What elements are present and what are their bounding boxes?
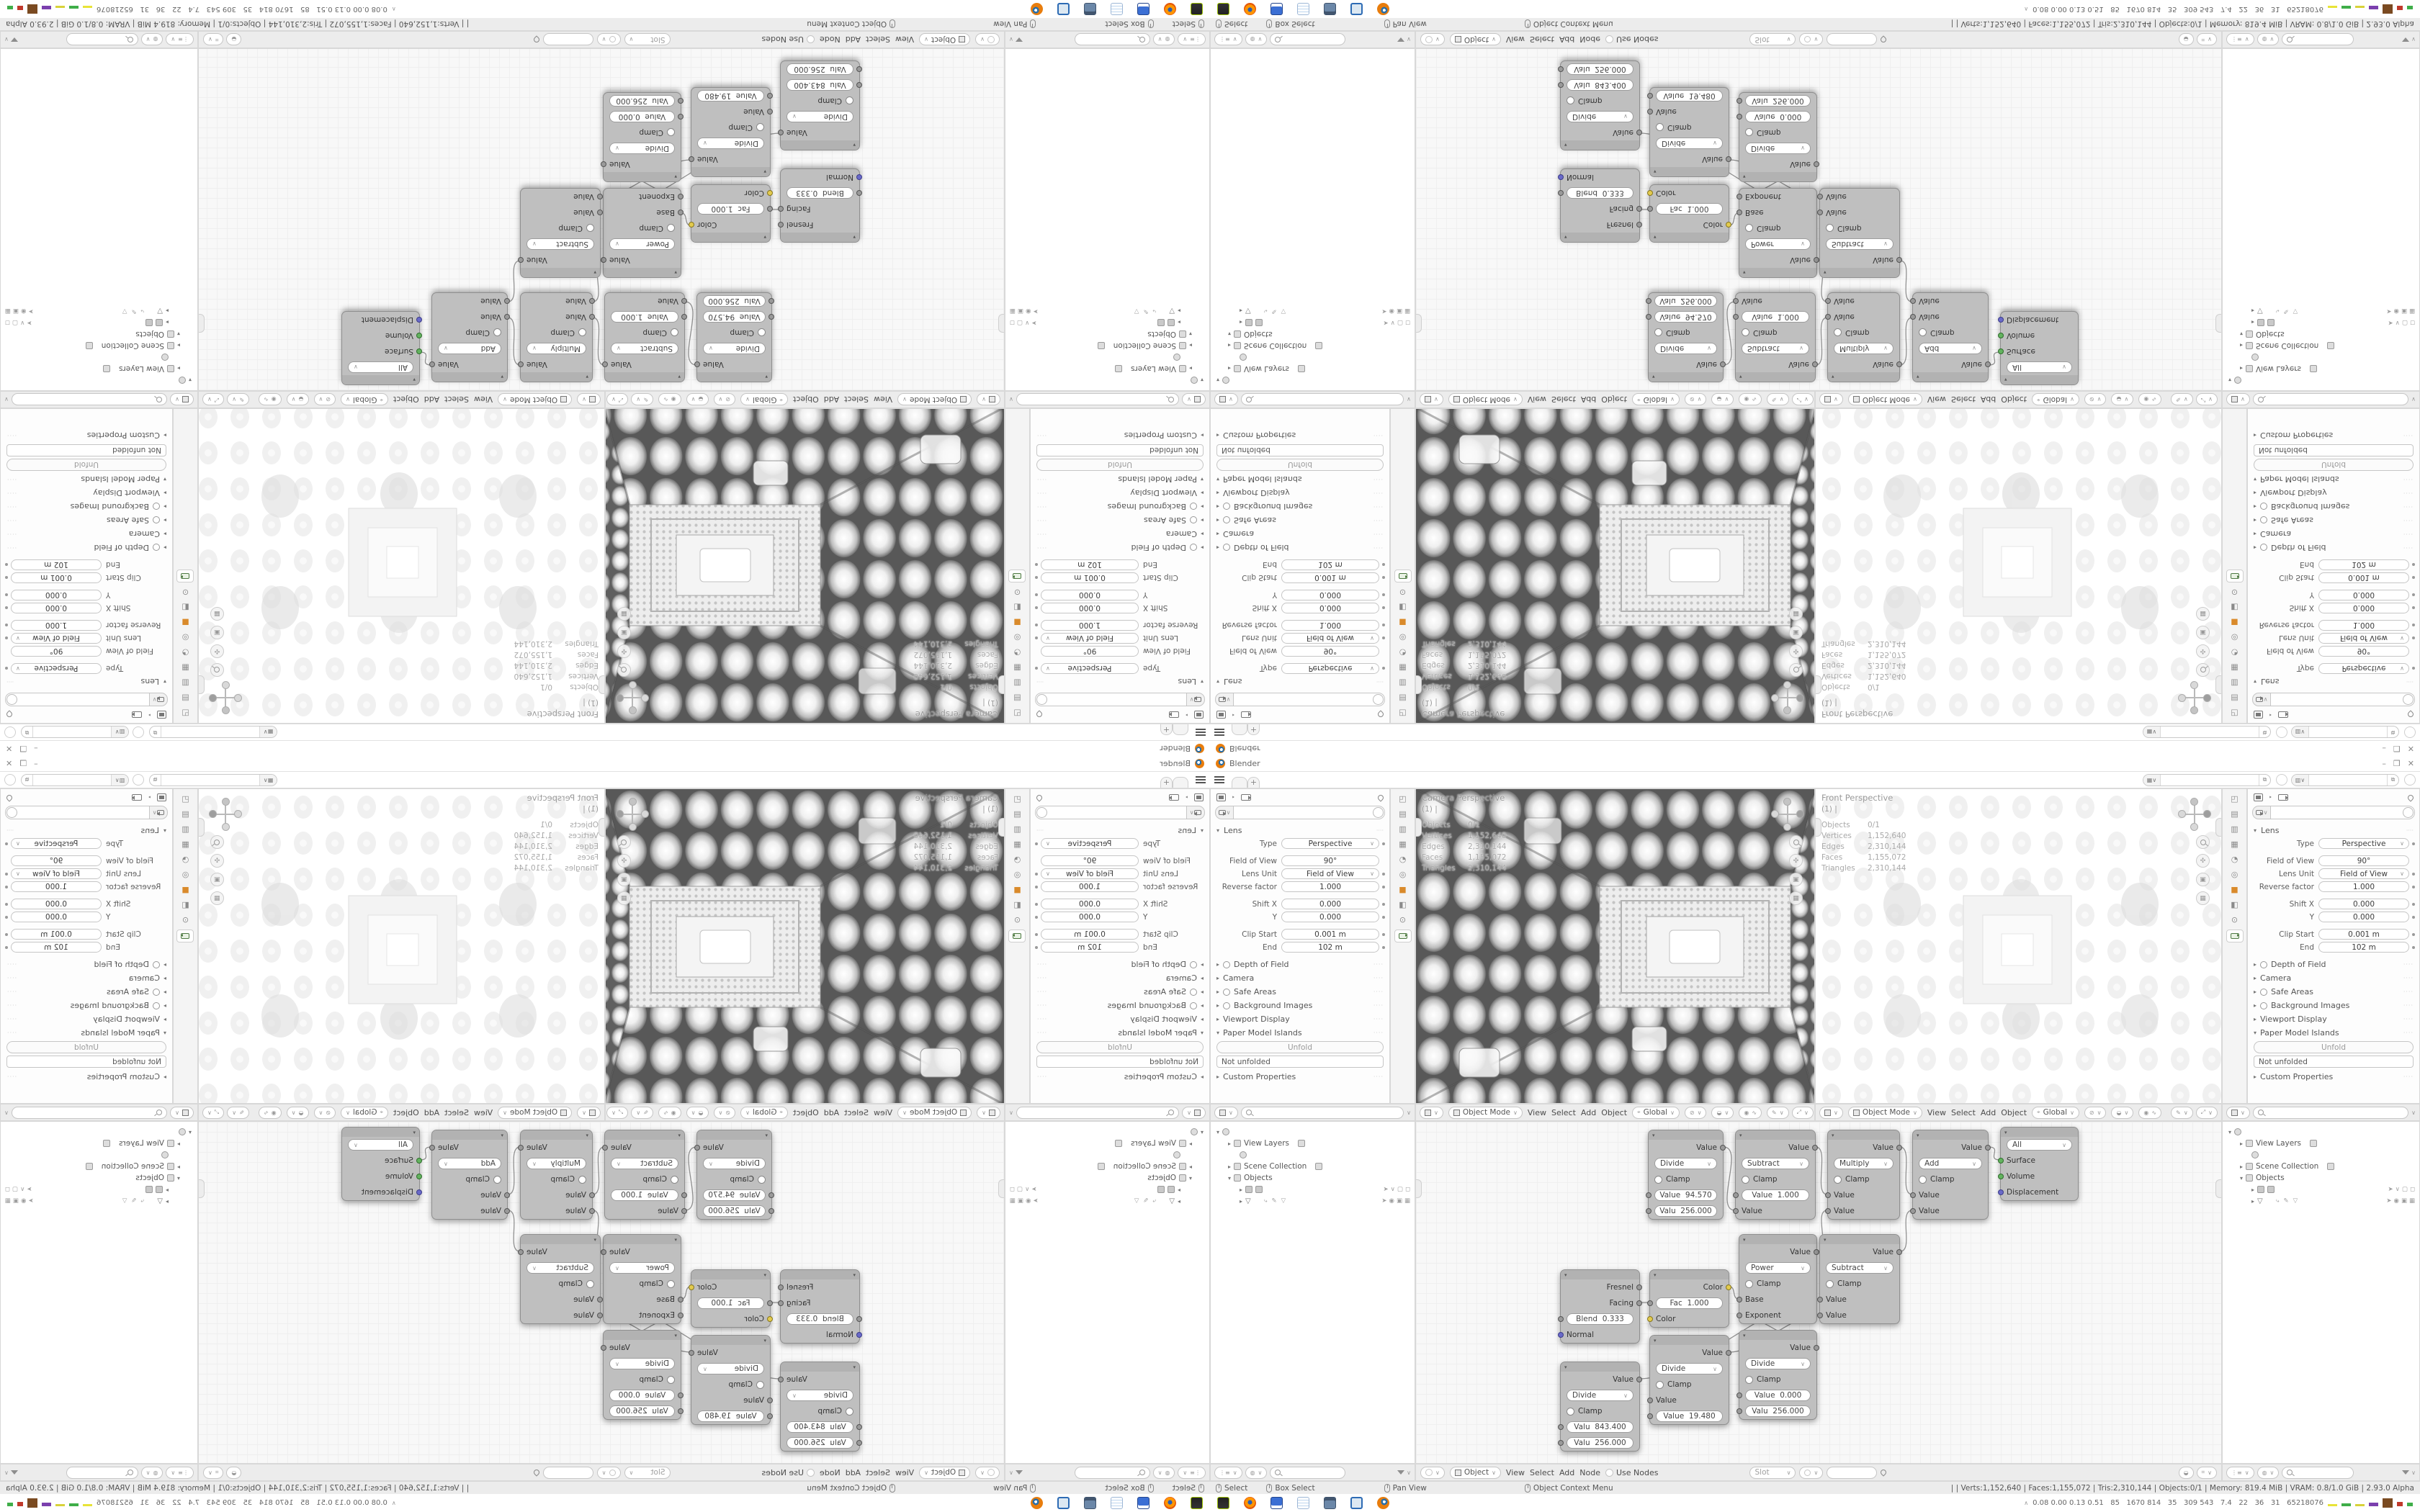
- tool-tab-icon[interactable]: ◰: [1012, 793, 1023, 804]
- object-tab-icon[interactable]: ■: [2229, 618, 2241, 628]
- camera-section[interactable]: ▸Camera····: [1, 527, 172, 541]
- scene-selector[interactable]: ▦∨⧉: [2143, 774, 2271, 786]
- facing-output-socket[interactable]: [778, 1300, 784, 1306]
- add-menu[interactable]: Add: [1981, 395, 1996, 405]
- camera-icon[interactable]: ▦: [5, 307, 11, 315]
- shift-x-field[interactable]: 0.000: [1281, 603, 1379, 613]
- math-node[interactable]: ▾ Value Divide∨ Clamp Value Value 19.480: [1649, 87, 1729, 177]
- safe-areas-checkbox[interactable]: [1190, 517, 1197, 524]
- math-node[interactable]: ▾ Value Add∨ Clamp Value Value: [431, 1130, 508, 1220]
- unlink-scene-button[interactable]: [2276, 727, 2287, 739]
- filter-funnel-icon[interactable]: [1397, 37, 1404, 42]
- node-collapse-toggle[interactable]: ▾: [1561, 1362, 1639, 1372]
- dof-checkbox[interactable]: [1223, 961, 1230, 968]
- value-output-socket[interactable]: [1636, 1377, 1642, 1382]
- blend-field[interactable]: Blend 0.333: [786, 1313, 853, 1325]
- object-tab-icon[interactable]: ■: [1012, 884, 1023, 894]
- dof-section[interactable]: ▸Depth of Field····: [1, 541, 172, 554]
- material-id-field[interactable]: [543, 34, 593, 46]
- custom-properties-section[interactable]: ▸Custom Properties····: [1211, 428, 1389, 442]
- unfold-button[interactable]: Unfold: [1216, 459, 1384, 471]
- math-operation-dropdown[interactable]: Multiply∨: [1834, 343, 1894, 354]
- reverse-factor-field[interactable]: 1.000: [2318, 881, 2409, 892]
- screen-icon[interactable]: ▣: [13, 1197, 19, 1205]
- new-scene-icon[interactable]: ⧉: [2259, 775, 2270, 786]
- background-images-checkbox[interactable]: [1190, 503, 1197, 510]
- visibility-icon[interactable]: ◉: [1389, 307, 1394, 315]
- material-icon-dropdown[interactable]: ∨: [1799, 1467, 1823, 1479]
- blender-icon[interactable]: [1377, 3, 1389, 15]
- render-tab-icon[interactable]: ▤: [2229, 809, 2241, 819]
- math-node[interactable]: ▾ Value Subtract∨ Clamp Value 1.000 Valu…: [604, 292, 685, 382]
- value-input-socket[interactable]: [1646, 298, 1652, 304]
- node-collapse-toggle[interactable]: ▾: [691, 1336, 770, 1345]
- viewlayer-tab-icon[interactable]: ▦: [1397, 839, 1409, 849]
- math-operation-dropdown[interactable]: Divide∨: [1567, 111, 1633, 122]
- transform-gizmo-dropdown[interactable]: ⤢∨: [606, 394, 628, 406]
- add-menu[interactable]: Add: [1559, 35, 1574, 45]
- viewport-display-section[interactable]: ▸Viewport Display····: [1031, 1012, 1209, 1026]
- value-input-socket[interactable]: [1736, 1408, 1742, 1414]
- normal-input-socket[interactable]: [1558, 174, 1564, 180]
- fake-user-shield-icon[interactable]: [6, 694, 17, 705]
- dof-checkbox[interactable]: [1223, 544, 1230, 552]
- annotate-tool-dropdown[interactable]: ✎∨: [1767, 394, 1789, 406]
- safe-areas-checkbox[interactable]: [1223, 517, 1230, 524]
- outliner-search-input[interactable]: [12, 1107, 167, 1119]
- facing-output-socket[interactable]: [1636, 206, 1642, 212]
- window-titlebar[interactable]: Blender – ❒ ✕: [1210, 756, 2420, 772]
- viewport-camera-perspective[interactable]: Camera Perspective (1) | Objects0/1 Vert…: [605, 408, 1005, 724]
- dof-section[interactable]: ▸Depth of Field····: [1211, 541, 1389, 554]
- node-collapse-toggle[interactable]: ▾: [342, 375, 419, 384]
- value-input-socket[interactable]: [1736, 1392, 1742, 1398]
- surface-input-socket[interactable]: [416, 1158, 422, 1164]
- value-field[interactable]: Value 1.000: [1742, 1189, 1809, 1201]
- pan-hand-icon[interactable]: ✣: [617, 644, 631, 658]
- viewport-camera-perspective[interactable]: Camera Perspective (1) | Objects0/1 Vert…: [1415, 788, 1815, 1104]
- view-menu[interactable]: View: [474, 1108, 493, 1117]
- add-menu[interactable]: Add: [1559, 1468, 1574, 1477]
- output-tab-icon[interactable]: ▥: [1397, 824, 1409, 834]
- clip-end-field[interactable]: 102 m: [1041, 942, 1139, 953]
- slot-dropdown[interactable]: Slot∨: [624, 1467, 671, 1479]
- editor-type-button[interactable]: ∨: [1819, 394, 1843, 406]
- outliner-object-data-row[interactable]: ▸▽⤷✎▽➤◉▣▦: [2228, 305, 2415, 317]
- select-icon[interactable]: ➤: [2388, 1186, 2393, 1193]
- math-node[interactable]: ▾ Value Subtract∨ Clamp Value 1.000 Valu…: [1735, 292, 1816, 382]
- lens-panel-header[interactable]: ▾Lens····: [1031, 819, 1209, 837]
- value-field[interactable]: Valu 256.000: [1567, 1437, 1633, 1449]
- lens-unit-dropdown[interactable]: Field of View: [1041, 633, 1139, 644]
- transform-gizmo-dropdown[interactable]: ⤢∨: [202, 1107, 224, 1119]
- minimize-button[interactable]: –: [34, 759, 38, 768]
- shader-type-dropdown[interactable]: Object∨: [1450, 1467, 1501, 1479]
- value-field[interactable]: Value 19.480: [1656, 90, 1723, 102]
- outliner-world-row[interactable]: [1216, 351, 1410, 363]
- outliner-scene-collection-row[interactable]: ▸Scene Collection: [1010, 340, 1204, 351]
- navigation-gizmo[interactable]: [1771, 798, 1804, 831]
- value-input-socket[interactable]: [1646, 1208, 1652, 1214]
- clamp-checkbox[interactable]: [493, 1176, 501, 1184]
- math-node[interactable]: ▾ Value Divide∨ Clamp Value 94.570 Valu …: [1648, 292, 1724, 382]
- value-input-socket[interactable]: [504, 1192, 510, 1198]
- clamp-checkbox[interactable]: [578, 1176, 586, 1184]
- view-menu[interactable]: View: [1927, 1108, 1946, 1117]
- value-field[interactable]: Valu 256.000: [1654, 1205, 1717, 1217]
- object-tab-icon[interactable]: ■: [1012, 618, 1023, 628]
- value-output-socket[interactable]: [1814, 1249, 1819, 1255]
- base-input-socket[interactable]: [1736, 210, 1742, 215]
- close-button[interactable]: ✕: [6, 759, 12, 768]
- node-collapse-toggle[interactable]: ▾: [432, 372, 507, 382]
- transform-orientation-dropdown[interactable]: ⌖Global∨: [740, 394, 788, 406]
- node-collapse-toggle[interactable]: ▾: [1561, 140, 1639, 150]
- background-images-section[interactable]: ▸Background Images····: [1031, 999, 1209, 1012]
- select-menu[interactable]: Select: [444, 395, 469, 405]
- outliner-world-row[interactable]: [1010, 351, 1204, 363]
- lens-unit-dropdown[interactable]: Field of View: [11, 633, 102, 644]
- navigation-gizmo[interactable]: [1771, 681, 1804, 714]
- shader-type-dropdown[interactable]: Object∨: [1450, 34, 1501, 46]
- material-id-field[interactable]: [543, 1467, 593, 1479]
- navigation-gizmo[interactable]: [2178, 681, 2211, 714]
- remove-viewlayer-button[interactable]: [4, 727, 16, 739]
- node-sidebar-collapsed-tab[interactable]: [199, 314, 205, 333]
- background-images-section[interactable]: ▸Background Images····: [1, 500, 172, 513]
- fac-field[interactable]: Fac 1.000: [1656, 203, 1723, 215]
- object-data-tab-icon[interactable]: [177, 930, 194, 942]
- math-operation-dropdown[interactable]: Add∨: [438, 1158, 501, 1169]
- object-data-tab-icon[interactable]: [1394, 570, 1412, 582]
- paper-model-islands-section[interactable]: ▾Paper Model Islands····: [2248, 472, 2419, 486]
- value-input-socket[interactable]: [1733, 298, 1739, 304]
- snap-target-dropdown[interactable]: ⊘∨: [314, 1107, 336, 1119]
- value-output-socket[interactable]: [694, 1145, 700, 1151]
- custom-properties-section[interactable]: ▸Custom Properties····: [2248, 1070, 2419, 1084]
- value-input-socket[interactable]: [767, 1398, 773, 1403]
- math-operation-dropdown[interactable]: Multiply∨: [526, 1158, 586, 1169]
- surface-input-socket[interactable]: [1998, 1158, 2004, 1164]
- filter-owner-dropdown[interactable]: ◍∨: [2257, 1467, 2280, 1479]
- node-collapse-toggle[interactable]: ▾: [1561, 233, 1639, 242]
- camera-datablock-selector[interactable]: ∨: [2252, 806, 2415, 819]
- value-input-socket[interactable]: [1910, 1208, 1916, 1214]
- custom-properties-section[interactable]: ▸Custom Properties····: [1031, 1070, 1209, 1084]
- snap-target-dropdown[interactable]: ⊘∨: [1685, 394, 1707, 406]
- clamp-checkbox[interactable]: [671, 1176, 678, 1184]
- outliner-filter-dropdown[interactable]: ∨: [2411, 1110, 2416, 1116]
- value-output-socket[interactable]: [601, 1249, 606, 1255]
- node-collapse-toggle[interactable]: ▾: [1739, 1331, 1816, 1340]
- search-input[interactable]: [66, 1467, 138, 1479]
- camera-icon[interactable]: ▦: [1010, 307, 1016, 315]
- tool-tab-icon[interactable]: ◰: [2229, 793, 2241, 804]
- reverse-factor-field[interactable]: 1.000: [1281, 881, 1379, 892]
- sidebar-collapsed-tab[interactable]: [199, 675, 205, 694]
- camera-view-icon[interactable]: ▣: [210, 626, 224, 639]
- screen-icon[interactable]: ▢: [2402, 1186, 2408, 1193]
- fac-input-socket[interactable]: [767, 206, 773, 212]
- value-input-socket[interactable]: [1647, 1398, 1653, 1403]
- new-viewlayer-icon[interactable]: ⧉: [22, 727, 33, 738]
- screen-icon[interactable]: ▢: [1397, 1186, 1403, 1193]
- select-menu[interactable]: Select: [1530, 35, 1554, 45]
- value-field[interactable]: Valu 843.400: [786, 79, 853, 91]
- output-tab-icon[interactable]: ▥: [1012, 678, 1023, 688]
- select-menu[interactable]: Select: [866, 35, 890, 45]
- reverse-factor-field[interactable]: 1.000: [11, 620, 102, 631]
- use-nodes-checkbox[interactable]: [807, 1469, 815, 1477]
- screen-icon[interactable]: ▢: [1397, 319, 1403, 326]
- camera-icon[interactable]: ▦: [1010, 1197, 1016, 1205]
- proportional-editing-toggle[interactable]: ◉∿: [1739, 1107, 1762, 1119]
- grid-toggle-icon[interactable]: ▦: [617, 607, 631, 621]
- display-mode-dropdown[interactable]: ⋮≡∨: [166, 1467, 194, 1479]
- pin-icon[interactable]: [5, 711, 13, 719]
- material-output-node[interactable]: ▾ All∨ Surface Volume Displacement: [341, 1127, 420, 1201]
- value-input-socket[interactable]: [1558, 66, 1564, 72]
- reverse-factor-field[interactable]: 1.000: [1281, 620, 1379, 631]
- color-output-socket[interactable]: [1726, 1284, 1731, 1290]
- math-node[interactable]: ▾ Value Divide∨ Clamp Valu 843.400 Valu …: [1560, 60, 1640, 150]
- node-collapse-toggle[interactable]: ▾: [781, 1362, 859, 1372]
- value-output-socket[interactable]: [1896, 1145, 1902, 1151]
- clip-start-field[interactable]: 0.001 m: [11, 929, 102, 940]
- sidebar-collapsed-tab[interactable]: [2215, 675, 2221, 694]
- camera-section[interactable]: ▸Camera····: [2248, 527, 2419, 541]
- camera-section[interactable]: ▸Camera····: [1, 971, 172, 985]
- layer-weight-node[interactable]: ▾ Fresnel Facing Blend 0.333 Normal: [780, 168, 860, 243]
- object-menu[interactable]: Object: [393, 1108, 419, 1117]
- math-node[interactable]: ▾ Value Multiply∨ Clamp Value Value: [1827, 292, 1900, 382]
- dof-section[interactable]: ▸Depth of Field····: [2248, 958, 2419, 971]
- new-scene-icon[interactable]: ⧉: [2259, 727, 2270, 738]
- fov-field[interactable]: 90°: [1281, 646, 1379, 657]
- select-menu[interactable]: Select: [844, 1108, 869, 1117]
- notepad-icon[interactable]: [1111, 3, 1123, 15]
- mode-dropdown[interactable]: Object Mode∨: [1848, 394, 1922, 406]
- add-menu[interactable]: Add: [1581, 395, 1596, 405]
- math-node[interactable]: ▾ Value Multiply∨ Clamp Value Value: [1827, 1130, 1900, 1220]
- node-collapse-toggle[interactable]: ▾: [604, 1235, 681, 1244]
- viewport-display-section[interactable]: ▸Viewport Display····: [1, 1012, 172, 1026]
- screen-icon[interactable]: ▢: [12, 319, 18, 326]
- visibility-icon[interactable]: ◉: [1389, 1197, 1394, 1205]
- output-tab-icon[interactable]: ▥: [1012, 824, 1023, 834]
- value-output-socket[interactable]: [778, 1377, 784, 1382]
- annotate-tool-dropdown[interactable]: ✎∨: [631, 1107, 653, 1119]
- scene-tab-icon[interactable]: ◔: [1012, 854, 1023, 864]
- scene-selector[interactable]: ▦∨⧉: [149, 726, 277, 739]
- value-input-socket[interactable]: [1558, 1440, 1564, 1446]
- select-menu[interactable]: Select: [1530, 1468, 1554, 1477]
- value-input-socket[interactable]: [589, 298, 595, 304]
- add-workspace-tab[interactable]: +: [1247, 777, 1260, 788]
- snap-magnet-toggle[interactable]: ◒∨: [2111, 1107, 2133, 1119]
- math-node[interactable]: ▾ Value Power∨ Clamp Base Exponent: [603, 188, 681, 278]
- layer-weight-node[interactable]: ▾ Fresnel Facing Blend 0.333 Normal: [1560, 168, 1640, 243]
- visibility-icon[interactable]: ◉: [2394, 1197, 2399, 1205]
- pan-hand-icon[interactable]: ✣: [1789, 854, 1803, 868]
- value-input-socket[interactable]: [589, 1208, 595, 1214]
- fresnel-output-socket[interactable]: [778, 222, 784, 228]
- shift-y-field[interactable]: 0.000: [1281, 590, 1379, 600]
- close-button[interactable]: ✕: [6, 744, 12, 753]
- remove-viewlayer-button[interactable]: [2404, 774, 2416, 786]
- outliner-view-layers-row[interactable]: ▸View Layers: [1010, 1138, 1204, 1149]
- node-collapse-toggle[interactable]: ▾: [1913, 372, 1988, 382]
- shift-y-field[interactable]: 0.000: [11, 912, 102, 922]
- pin-icon[interactable]: [532, 35, 540, 43]
- paper-model-islands-section[interactable]: ▾Paper Model Islands····: [1031, 1026, 1209, 1040]
- outliner-object-row[interactable]: ▸➤∨▢◻: [1010, 317, 1204, 328]
- select-icon[interactable]: ➤: [1384, 1186, 1389, 1193]
- lens-unit-dropdown[interactable]: Field of View: [1041, 868, 1139, 879]
- node-collapse-toggle[interactable]: ▾: [781, 1270, 859, 1279]
- cursor-icon[interactable]: ➤: [1381, 1197, 1386, 1205]
- clamp-checkbox[interactable]: [667, 1376, 675, 1384]
- filter-funnel-icon[interactable]: [11, 1470, 18, 1475]
- fac-field[interactable]: Fac 1.000: [1656, 1297, 1723, 1309]
- output-target-dropdown[interactable]: All∨: [2007, 1139, 2072, 1151]
- pan-hand-icon[interactable]: ✣: [210, 644, 224, 658]
- math-operation-dropdown[interactable]: Subtract∨: [1742, 343, 1809, 354]
- clamp-checkbox[interactable]: [1826, 225, 1834, 233]
- value-output-socket[interactable]: [1812, 1145, 1818, 1151]
- output-tab-icon[interactable]: ▥: [2229, 678, 2241, 688]
- unfold-button[interactable]: Unfold: [6, 1041, 166, 1053]
- reverse-factor-field[interactable]: 1.000: [1041, 881, 1139, 892]
- editor-type-button[interactable]: ∨: [975, 1467, 1000, 1479]
- value-input-socket[interactable]: [1646, 1192, 1652, 1198]
- value-input-socket[interactable]: [1736, 98, 1742, 104]
- transform-gizmo-dropdown[interactable]: ⤢∨: [2196, 394, 2218, 406]
- physics-tab-icon[interactable]: ⊙: [1397, 914, 1409, 924]
- proportional-editing-toggle[interactable]: ◉∿: [2138, 394, 2161, 406]
- outliner-object-row[interactable]: ▸➤∨▢◻: [1216, 1184, 1410, 1195]
- view-menu[interactable]: View: [1506, 35, 1525, 45]
- value-input-socket[interactable]: [1733, 1208, 1739, 1214]
- screen-icon[interactable]: ▣: [2401, 307, 2407, 315]
- value-input-socket[interactable]: [1646, 314, 1652, 320]
- material-icon-dropdown[interactable]: ∨: [597, 1467, 621, 1479]
- material-output-node[interactable]: ▾ All∨ Surface Volume Displacement: [2000, 311, 2079, 385]
- object-menu[interactable]: Object: [2001, 395, 2027, 405]
- value-output-socket[interactable]: [1726, 156, 1731, 162]
- snap-magnet-toggle[interactable]: ◒∨: [686, 394, 709, 406]
- lens-unit-dropdown[interactable]: Field of View: [1281, 868, 1379, 879]
- disk64-icon[interactable]: [1270, 3, 1283, 15]
- world-tab-icon[interactable]: ◎: [1012, 869, 1023, 879]
- editor-type-button[interactable]: ∨: [1420, 1467, 1445, 1479]
- cursor-icon[interactable]: ➤: [1381, 307, 1386, 315]
- value-field[interactable]: Value 94.570: [1654, 1189, 1717, 1201]
- value-field[interactable]: Value 19.480: [1656, 1410, 1723, 1422]
- camera-datablock-selector[interactable]: ∨: [5, 806, 168, 819]
- math-operation-dropdown[interactable]: Multiply∨: [1834, 1158, 1894, 1169]
- render-visibility-icon[interactable]: ◻: [2410, 319, 2415, 326]
- snapping-mode-dropdown[interactable]: ⌗∨: [2197, 1467, 2217, 1479]
- clip-start-field[interactable]: 0.001 m: [1281, 572, 1379, 583]
- dof-section[interactable]: ▸Depth of Field····: [1031, 958, 1209, 971]
- outliner-objects-row[interactable]: ▾Objects: [1010, 1172, 1204, 1184]
- lens-type-dropdown[interactable]: Perspective: [2318, 838, 2409, 849]
- material-output-node[interactable]: ▾ All∨ Surface Volume Displacement: [2000, 1127, 2079, 1201]
- world-tab-icon[interactable]: ◎: [1012, 633, 1023, 643]
- physics-tab-icon[interactable]: ⊙: [1397, 588, 1409, 598]
- output-tab-icon[interactable]: ▥: [180, 678, 192, 688]
- math-node[interactable]: ▾ Value Subtract∨ Clamp Value Value: [1819, 1234, 1900, 1324]
- blend-input-socket[interactable]: [1558, 190, 1564, 196]
- properties-editor-icon[interactable]: [1194, 711, 1204, 719]
- outliner-search-input[interactable]: [1241, 394, 1404, 406]
- properties-editor-icon[interactable]: [157, 793, 166, 801]
- safe-areas-section[interactable]: ▸Safe Areas····: [1, 985, 172, 999]
- math-operation-dropdown[interactable]: Divide∨: [1745, 1358, 1811, 1369]
- volume-input-socket[interactable]: [1998, 1174, 2004, 1179]
- layer-weight-node[interactable]: ▾ Fresnel Facing Blend 0.333 Normal: [1560, 1269, 1640, 1344]
- normal-input-socket[interactable]: [1558, 1332, 1564, 1338]
- math-node[interactable]: ▾ Value Divide∨ Clamp Valu 843.400 Valu …: [780, 60, 860, 150]
- mode-dropdown[interactable]: Object Mode∨: [498, 1107, 572, 1119]
- outliner-root-row[interactable]: ▾: [1010, 374, 1204, 386]
- outliner-root-row[interactable]: ▾: [1216, 374, 1410, 386]
- value-output-socket[interactable]: [1896, 1249, 1902, 1255]
- output-tab-icon[interactable]: ▥: [2229, 824, 2241, 834]
- snapping-mode-dropdown[interactable]: ⌗∨: [2197, 34, 2217, 46]
- filter-owner-dropdown[interactable]: ◍∨: [2257, 34, 2280, 46]
- volume-input-socket[interactable]: [416, 1174, 422, 1179]
- exponent-input-socket[interactable]: [678, 194, 684, 199]
- scene-tab-icon[interactable]: ◔: [1397, 648, 1409, 658]
- restore-button[interactable]: ❒: [2393, 759, 2401, 768]
- filter-owner-dropdown[interactable]: ◍∨: [1245, 1467, 1268, 1479]
- restore-button[interactable]: ❒: [19, 744, 27, 753]
- render-tab-icon[interactable]: ▤: [1012, 809, 1023, 819]
- minimize-button[interactable]: –: [2382, 744, 2386, 753]
- value-field[interactable]: Value 0.000: [609, 111, 675, 122]
- screen-icon[interactable]: ▢: [2402, 319, 2408, 326]
- scene-tab-icon[interactable]: ◔: [2229, 648, 2241, 658]
- node-collapse-toggle[interactable]: ▾: [521, 1130, 592, 1140]
- clamp-checkbox[interactable]: [586, 225, 594, 233]
- outliner-objects-row[interactable]: ▾Objects: [1216, 1172, 1410, 1184]
- clip-end-field[interactable]: 102 m: [11, 559, 102, 570]
- view-menu[interactable]: View: [1927, 395, 1946, 405]
- screen-icon[interactable]: ▣: [1018, 307, 1023, 315]
- annotate-tool-dropdown[interactable]: ✎∨: [227, 1107, 249, 1119]
- transform-orientation-dropdown[interactable]: ⌖Global∨: [1632, 394, 1680, 406]
- value-input-socket[interactable]: [678, 114, 684, 120]
- clip-end-field[interactable]: 102 m: [2318, 942, 2409, 953]
- value-input-socket[interactable]: [1733, 314, 1739, 320]
- object-tab-icon[interactable]: ■: [1397, 618, 1409, 628]
- outliner-objects-row[interactable]: ▾Objects: [5, 1172, 192, 1184]
- transform-orientation-dropdown[interactable]: ⌖Global∨: [2032, 394, 2079, 406]
- displacement-input-socket[interactable]: [416, 1189, 422, 1195]
- layer-weight-node[interactable]: ▾ Fresnel Facing Blend 0.333 Normal: [780, 1269, 860, 1344]
- clamp-checkbox[interactable]: [1745, 129, 1753, 137]
- image-viewer-icon[interactable]: [1057, 1497, 1070, 1509]
- fov-field[interactable]: 90°: [2318, 646, 2409, 657]
- tool-tab-icon[interactable]: ◰: [180, 708, 192, 719]
- math-node[interactable]: ▾ Value Divide∨ Clamp Value Value 19.480: [691, 1335, 771, 1425]
- tool-tab-icon[interactable]: ◰: [1397, 793, 1409, 804]
- clamp-checkbox[interactable]: [1656, 1381, 1664, 1389]
- physics-tab-icon[interactable]: ⊙: [1012, 914, 1023, 924]
- value-field[interactable]: Value 1.000: [1742, 311, 1809, 323]
